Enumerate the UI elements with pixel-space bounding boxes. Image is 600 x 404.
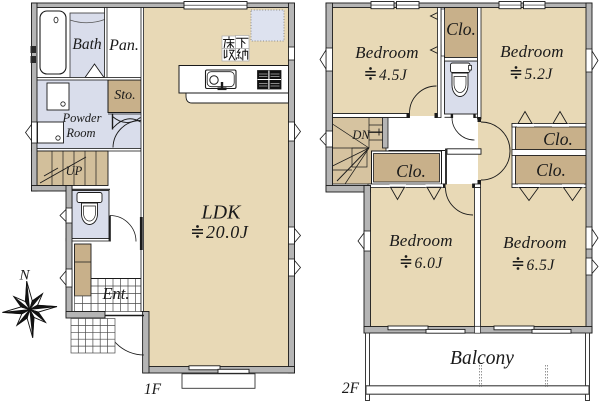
svg-text:4.5J: 4.5J (379, 67, 408, 84)
svg-text:20.0J: 20.0J (206, 222, 249, 242)
svg-text:Balcony: Balcony (450, 348, 514, 369)
svg-text:1F: 1F (144, 381, 162, 398)
svg-text:Sto.: Sto. (114, 88, 135, 103)
svg-text:LDK: LDK (201, 202, 243, 224)
svg-text:6.0J: 6.0J (415, 255, 444, 272)
svg-text:Pan.: Pan. (108, 37, 139, 54)
svg-text:Powder: Powder (62, 111, 102, 125)
svg-text:N: N (18, 268, 30, 284)
svg-text:2F: 2F (342, 380, 360, 397)
svg-text:Ent.: Ent. (101, 284, 129, 303)
svg-text:Clo.: Clo. (396, 161, 426, 181)
svg-text:Bedroom: Bedroom (355, 43, 419, 62)
svg-text:Clo.: Clo. (536, 160, 566, 180)
svg-text:Bedroom: Bedroom (389, 231, 453, 250)
svg-text:6.5J: 6.5J (527, 257, 556, 274)
svg-text:Bedroom: Bedroom (500, 42, 564, 61)
svg-text:Clo.: Clo. (446, 19, 476, 39)
svg-text:DN: DN (351, 128, 370, 142)
svg-text:Clo.: Clo. (543, 129, 573, 149)
svg-text:Bedroom: Bedroom (503, 233, 567, 252)
svg-text:Room: Room (65, 126, 95, 140)
svg-text:Bath: Bath (72, 36, 102, 53)
svg-text:5.2J: 5.2J (525, 66, 554, 83)
svg-text:UP: UP (66, 164, 83, 178)
